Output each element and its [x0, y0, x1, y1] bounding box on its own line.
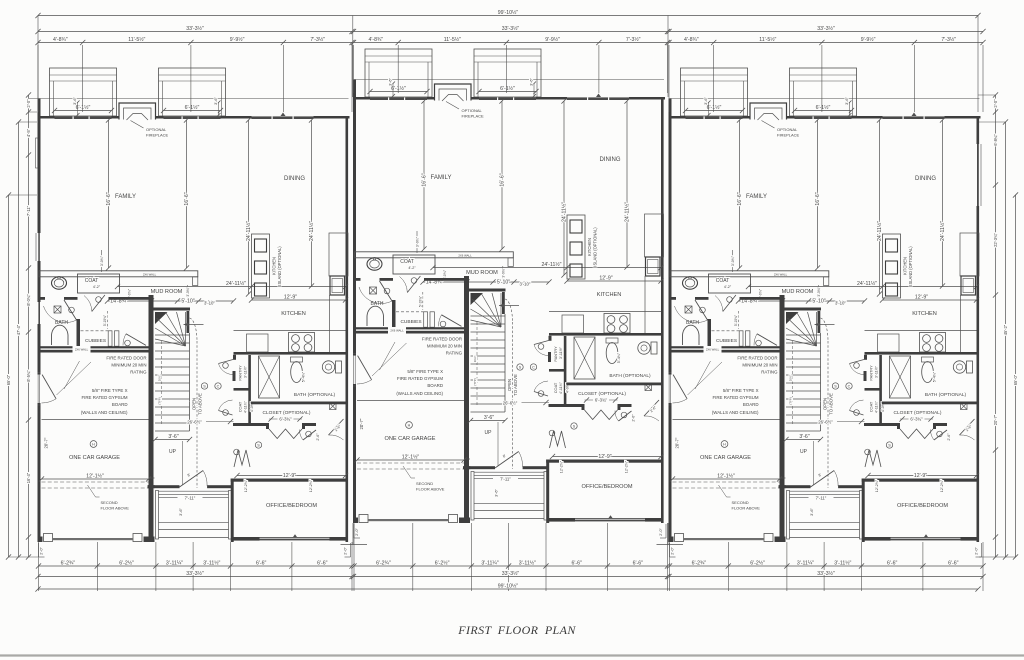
svg-text:16'-6": 16'-6" [421, 173, 427, 186]
svg-text:6'-1½": 6'-1½" [816, 104, 831, 111]
svg-text:COAT: COAT [716, 278, 730, 284]
svg-text:OPTIONAL: OPTIONAL [462, 108, 483, 113]
svg-text:(TYP): (TYP) [473, 378, 477, 385]
svg-text:26'-6½": 26'-6½" [187, 420, 202, 425]
svg-text:33'-3½": 33'-3½" [817, 25, 835, 32]
svg-text:FIRE RATED DOOR: FIRE RATED DOOR [422, 337, 462, 342]
svg-text:24'-11½": 24'-11½" [939, 221, 946, 241]
svg-text:20'-7": 20'-7" [44, 437, 49, 448]
svg-text:C: C [532, 366, 535, 370]
svg-text:2X6 WALL: 2X6 WALL [75, 348, 89, 352]
svg-text:4'-11¾": 4'-11¾" [559, 381, 563, 394]
svg-text:2X6 WALL: 2X6 WALL [143, 273, 157, 277]
svg-text:12'-9": 12'-9" [598, 454, 611, 460]
svg-text:OPEN: OPEN [507, 379, 512, 391]
svg-text:RATING: RATING [761, 370, 778, 375]
svg-text:7'-11": 7'-11" [816, 496, 827, 501]
svg-text:3'-6": 3'-6" [844, 97, 849, 105]
svg-text:SECOND: SECOND [416, 481, 433, 486]
svg-text:47'-4": 47'-4" [16, 324, 21, 335]
svg-text:2X6 WALL: 2X6 WALL [458, 254, 472, 258]
svg-text:COAT: COAT [238, 401, 243, 412]
svg-text:2'-6": 2'-6" [632, 414, 636, 422]
svg-text:2'-0": 2'-0" [974, 547, 979, 555]
svg-text:24'-11½": 24'-11½" [308, 221, 315, 241]
svg-text:BATH (OPTIONAL): BATH (OPTIONAL) [925, 392, 967, 398]
svg-text:3'-0¾": 3'-0¾" [100, 255, 104, 266]
svg-text:FIREPLACE: FIREPLACE [146, 133, 169, 138]
svg-text:16'-4": 16'-4" [26, 472, 31, 483]
svg-text:3'-10": 3'-10" [520, 282, 531, 287]
svg-text:3'-10": 3'-10" [204, 301, 215, 306]
svg-text:4'-11¾": 4'-11¾" [875, 400, 879, 413]
svg-text:OFFICE/BEDROOM: OFFICE/BEDROOM [266, 503, 317, 509]
svg-text:BATH (OPTIONAL): BATH (OPTIONAL) [294, 392, 336, 398]
svg-text:(WALLS AND CEILING): (WALLS AND CEILING) [81, 410, 128, 415]
svg-text:MUD ROOM: MUD ROOM [782, 289, 814, 295]
svg-text:4'-8¾": 4'-8¾" [368, 37, 383, 43]
svg-text:3'-11½": 3'-11½" [875, 365, 879, 378]
svg-text:6'-2½": 6'-2½" [119, 560, 134, 567]
svg-text:3'-11¼": 3'-11¼" [481, 561, 498, 567]
svg-text:UP: UP [169, 449, 177, 455]
svg-text:12'-2¾": 12'-2¾" [940, 479, 944, 492]
svg-text:FLOOR ABOVE: FLOOR ABOVE [416, 487, 445, 492]
svg-text:2'-0": 2'-0" [343, 547, 348, 555]
svg-text:26'-6½": 26'-6½" [503, 401, 518, 406]
svg-text:12'-2¾": 12'-2¾" [309, 479, 313, 492]
svg-text:10¼": 10¼" [158, 375, 162, 381]
svg-text:3'-11¼": 3'-11¼" [797, 561, 814, 567]
svg-text:6'-6": 6'-6" [948, 561, 958, 567]
svg-text:SECOND: SECOND [732, 500, 749, 505]
svg-text:5/8" FIRE TYPE X: 5/8" FIRE TYPE X [92, 388, 128, 393]
svg-text:6'-1½": 6'-1½" [500, 85, 515, 92]
svg-text:7'-3½": 7'-3½" [310, 36, 325, 43]
svg-text:6'-6": 6'-6" [887, 561, 897, 567]
svg-text:MUD ROOM: MUD ROOM [151, 289, 183, 295]
svg-text:RATING: RATING [446, 351, 463, 356]
svg-text:FIRE RATED GYPSUM: FIRE RATED GYPSUM [81, 395, 127, 400]
svg-text:5'-10¾": 5'-10¾" [419, 295, 423, 307]
svg-text:6'-2½": 6'-2½" [750, 560, 765, 567]
svg-text:TO ABOVE: TO ABOVE [829, 393, 834, 415]
svg-text:6'-1½": 6'-1½" [707, 104, 722, 111]
svg-text:C: C [217, 385, 220, 389]
svg-text:3'-6": 3'-6" [799, 434, 809, 440]
svg-text:3'-11¼": 3'-11¼" [166, 561, 183, 567]
svg-text:5/8" FIRE TYPE X: 5/8" FIRE TYPE X [723, 388, 759, 393]
svg-text:2'-6": 2'-6" [947, 433, 951, 441]
svg-text:99'-10½": 99'-10½" [498, 583, 519, 590]
svg-text:9'-9½": 9'-9½" [861, 36, 876, 43]
svg-text:OPTIONAL: OPTIONAL [146, 127, 167, 132]
svg-text:3'-0¾": 3'-0¾" [731, 255, 735, 266]
svg-text:C: C [848, 385, 851, 389]
svg-text:RATING: RATING [130, 370, 147, 375]
svg-text:MUD ROOM: MUD ROOM [466, 270, 498, 276]
svg-text:2'-0": 2'-0" [993, 99, 998, 108]
svg-text:11'-5½": 11'-5½" [759, 36, 776, 43]
svg-text:5'-10": 5'-10" [181, 299, 194, 305]
svg-text:FIRE RATED DOOR: FIRE RATED DOOR [737, 356, 777, 361]
svg-text:5'-4¾": 5'-4¾" [302, 371, 306, 382]
svg-text:24'-11½": 24'-11½" [245, 221, 252, 241]
svg-text:4'-8¾": 4'-8¾" [53, 37, 68, 43]
svg-text:26'-6½": 26'-6½" [818, 420, 833, 425]
svg-text:ISLAND (OPTIONAL): ISLAND (OPTIONAL) [593, 227, 598, 267]
svg-text:MINIMUM 20 MIN: MINIMUM 20 MIN [742, 363, 777, 368]
svg-text:ISLAND (OPTIONAL): ISLAND (OPTIONAL) [277, 246, 282, 286]
svg-text:FAMILY: FAMILY [746, 194, 767, 200]
svg-text:16'-6": 16'-6" [184, 192, 190, 205]
svg-text:3'-6": 3'-6" [168, 434, 178, 440]
svg-text:FIRE RATED GYPSUM: FIRE RATED GYPSUM [397, 376, 443, 381]
svg-text:33'-3½": 33'-3½" [502, 570, 520, 577]
svg-text:FAMILY: FAMILY [431, 175, 452, 181]
svg-text:5/8" FIRE TYPE X: 5/8" FIRE TYPE X [407, 369, 443, 374]
svg-text:6'-6": 6'-6" [633, 561, 643, 567]
svg-text:3'-0¾": 3'-0¾" [501, 268, 505, 278]
svg-text:33'-3½": 33'-3½" [817, 570, 835, 577]
svg-text:3'-10": 3'-10" [835, 301, 846, 306]
svg-text:3'-6": 3'-6" [72, 97, 77, 105]
svg-text:PANTRY: PANTRY [869, 365, 874, 381]
svg-text:7'-3½": 7'-3½" [941, 36, 956, 43]
svg-text:OFFICE/BEDROOM: OFFICE/BEDROOM [897, 503, 948, 509]
svg-text:6'-3¾": 6'-3¾" [279, 417, 292, 422]
svg-text:5'-4¾": 5'-4¾" [617, 352, 621, 363]
svg-text:4'-2": 4'-2" [408, 266, 416, 270]
svg-text:3'-6": 3'-6" [213, 97, 218, 105]
svg-text:16'-6": 16'-6" [106, 192, 112, 205]
svg-text:H: H [92, 443, 95, 447]
svg-text:10¼": 10¼" [473, 356, 477, 362]
svg-text:12'-9": 12'-9" [914, 473, 927, 479]
svg-text:12'-2¾": 12'-2¾" [625, 460, 629, 473]
svg-text:6'-6": 6'-6" [572, 561, 582, 567]
svg-text:ONE CAR GARAGE: ONE CAR GARAGE [700, 455, 751, 461]
svg-text:UP: UP [485, 430, 493, 436]
svg-text:7'-11": 7'-11" [185, 496, 196, 501]
svg-text:MINIMUM 20 MIN: MINIMUM 20 MIN [427, 344, 462, 349]
svg-text:ONE CAR GARAGE: ONE CAR GARAGE [69, 455, 120, 461]
svg-text:UP: UP [800, 449, 808, 455]
svg-text:20'-7": 20'-7" [359, 418, 364, 429]
svg-text:6'-1½": 6'-1½" [76, 104, 91, 111]
svg-text:COAT: COAT [869, 401, 874, 412]
svg-text:H: H [723, 443, 726, 447]
svg-text:KITCHEN: KITCHEN [272, 257, 277, 275]
svg-text:5'-10¾": 5'-10¾" [103, 314, 107, 326]
svg-text:CUBBIES: CUBBIES [85, 338, 106, 344]
svg-text:DINING: DINING [915, 176, 936, 182]
svg-text:65'-0": 65'-0" [1013, 374, 1018, 385]
svg-text:DINING: DINING [284, 176, 305, 182]
svg-text:24'-11½": 24'-11½" [857, 280, 877, 287]
svg-text:COAT: COAT [85, 278, 99, 284]
svg-text:ONE CAR GARAGE: ONE CAR GARAGE [385, 436, 436, 442]
svg-text:FLOOR ABOVE: FLOOR ABOVE [732, 506, 761, 511]
svg-text:5'-10¾": 5'-10¾" [734, 314, 738, 326]
svg-text:11'-5½": 11'-5½" [128, 36, 145, 43]
svg-text:2'-0": 2'-0" [354, 528, 359, 536]
svg-text:ISLAND (OPTIONAL): ISLAND (OPTIONAL) [908, 246, 913, 286]
svg-text:OFFICE/BEDROOM: OFFICE/BEDROOM [582, 484, 633, 490]
svg-text:3'-0¾": 3'-0¾" [817, 287, 821, 297]
svg-text:PANTRY: PANTRY [238, 365, 243, 381]
svg-text:4'-2": 4'-2" [724, 285, 732, 289]
svg-text:12'-2¾": 12'-2¾" [244, 479, 248, 492]
svg-text:KITCHEN: KITCHEN [281, 311, 306, 317]
svg-text:6'-2¾": 6'-2¾" [376, 561, 391, 567]
svg-text:3'-11½": 3'-11½" [559, 346, 563, 359]
svg-text:3'-11½": 3'-11½" [834, 560, 851, 567]
svg-text:3'-6": 3'-6" [388, 78, 393, 86]
svg-text:FLOOR ABOVE: FLOOR ABOVE [101, 506, 130, 511]
svg-text:PANTRY: PANTRY [553, 346, 558, 362]
svg-text:KITCHEN: KITCHEN [597, 292, 622, 298]
svg-text:24'-11½": 24'-11½" [560, 202, 567, 222]
svg-text:12'-2¾": 12'-2¾" [560, 460, 564, 473]
svg-text:6'-1½": 6'-1½" [391, 85, 406, 92]
svg-text:OPTIONAL: OPTIONAL [777, 127, 798, 132]
svg-text:16'-6": 16'-6" [815, 192, 821, 205]
svg-text:OPEN: OPEN [192, 398, 197, 410]
svg-text:8'-5¾": 8'-5¾" [26, 370, 31, 382]
svg-text:2'-0": 2'-0" [39, 547, 44, 555]
svg-text:3'-6": 3'-6" [703, 97, 708, 105]
svg-text:4'-2": 4'-2" [93, 285, 101, 289]
svg-text:FIREPLACE: FIREPLACE [462, 114, 485, 119]
svg-text:45'-2": 45'-2" [1003, 324, 1008, 335]
svg-text:CUBBIES: CUBBIES [716, 338, 737, 344]
svg-text:COAT: COAT [553, 382, 558, 393]
svg-text:5'-10": 5'-10" [497, 280, 510, 286]
svg-text:KITCHEN: KITCHEN [912, 311, 937, 317]
svg-text:12'-1½": 12'-1½" [86, 473, 104, 480]
svg-text:4'-8¾": 4'-8¾" [684, 37, 699, 43]
svg-text:3'-6": 3'-6" [494, 489, 499, 497]
svg-text:65'-0": 65'-0" [6, 374, 11, 385]
svg-text:12'-9": 12'-9" [915, 295, 928, 301]
svg-text:(WALLS AND CEILING): (WALLS AND CEILING) [396, 391, 443, 396]
svg-text:20'-7": 20'-7" [993, 414, 998, 425]
svg-text:BATH (OPTIONAL): BATH (OPTIONAL) [609, 373, 651, 379]
svg-text:3'-6": 3'-6" [809, 508, 814, 516]
svg-text:BOARD: BOARD [427, 383, 443, 388]
svg-text:24'-11½": 24'-11½" [541, 261, 561, 268]
svg-text:6'-2¾": 6'-2¾" [692, 561, 707, 567]
svg-text:33'-3½": 33'-3½" [186, 570, 204, 577]
svg-text:12'-9": 12'-9" [284, 295, 297, 301]
svg-text:6'-3¾": 6'-3¾" [595, 398, 608, 403]
svg-text:3'-6": 3'-6" [484, 415, 494, 421]
svg-text:24'-11½": 24'-11½" [226, 280, 246, 287]
svg-text:2X6 WALL: 2X6 WALL [390, 329, 404, 333]
svg-text:7'-11": 7'-11" [500, 477, 511, 482]
svg-text:24'-11½": 24'-11½" [876, 221, 883, 241]
svg-text:3'-11½": 3'-11½" [244, 365, 248, 378]
svg-text:6'-1½": 6'-1½" [185, 104, 200, 111]
svg-text:OPEN: OPEN [823, 398, 828, 410]
svg-text:7'-11": 7'-11" [26, 205, 31, 216]
svg-text:2X6 WALL: 2X6 WALL [706, 348, 720, 352]
svg-text:3'-6": 3'-6" [178, 508, 183, 516]
svg-text:3'-0¾": 3'-0¾" [416, 236, 420, 247]
svg-text:FIRE RATED GYPSUM: FIRE RATED GYPSUM [712, 395, 758, 400]
svg-text:7'-3½": 7'-3½" [626, 36, 641, 43]
svg-text:9'-9½": 9'-9½" [230, 36, 245, 43]
svg-text:FAMILY: FAMILY [115, 194, 136, 200]
svg-text:TO ABOVE: TO ABOVE [513, 374, 518, 396]
svg-text:KITCHEN: KITCHEN [587, 238, 592, 256]
svg-text:6'-2½": 6'-2½" [435, 560, 450, 567]
svg-text:11'-5½": 11'-5½" [444, 36, 461, 43]
svg-text:2'-0": 2'-0" [670, 547, 675, 555]
svg-text:H: H [408, 424, 411, 428]
svg-text:5'-4¾": 5'-4¾" [933, 371, 937, 382]
svg-text:4'-5": 4'-5" [26, 128, 31, 137]
svg-text:CLOSET (OPTIONAL): CLOSET (OPTIONAL) [263, 410, 311, 416]
svg-text:(WALLS AND CEILING): (WALLS AND CEILING) [712, 410, 759, 415]
svg-text:BOARD: BOARD [743, 402, 759, 407]
svg-text:DINING: DINING [600, 157, 621, 163]
svg-text:6'-3¾": 6'-3¾" [910, 417, 923, 422]
svg-text:(TYP): (TYP) [158, 397, 162, 404]
svg-text:22'-3¾": 22'-3¾" [993, 233, 998, 247]
svg-text:BOARD: BOARD [112, 402, 128, 407]
svg-text:FIREPLACE: FIREPLACE [777, 133, 800, 138]
svg-text:16'-6": 16'-6" [737, 192, 743, 205]
svg-text:12'-1½": 12'-1½" [717, 473, 735, 480]
svg-text:COAT: COAT [400, 259, 414, 265]
svg-text:3'-6": 3'-6" [529, 78, 534, 86]
svg-text:4'-11¾": 4'-11¾" [244, 400, 248, 413]
svg-text:2'-6": 2'-6" [316, 433, 320, 441]
svg-text:12'-2¾": 12'-2¾" [875, 479, 879, 492]
svg-text:24'-11½": 24'-11½" [623, 202, 630, 222]
svg-text:2'-0": 2'-0" [658, 528, 663, 536]
svg-text:KITCHEN: KITCHEN [903, 257, 908, 275]
svg-text:FIRST FLOOR PLAN: FIRST FLOOR PLAN [457, 623, 576, 637]
svg-text:20'-7": 20'-7" [675, 437, 680, 448]
svg-text:CLOSET (OPTIONAL): CLOSET (OPTIONAL) [894, 410, 942, 416]
svg-text:6'-2¾": 6'-2¾" [61, 561, 76, 567]
svg-text:8'-0¾": 8'-0¾" [26, 294, 31, 306]
svg-text:3'-11½": 3'-11½" [519, 560, 536, 567]
svg-text:10¼": 10¼" [789, 375, 793, 381]
svg-text:CLOSET (OPTIONAL): CLOSET (OPTIONAL) [578, 391, 626, 397]
svg-text:CUBBIES: CUBBIES [400, 319, 421, 325]
svg-text:33'-3½": 33'-3½" [502, 25, 520, 32]
svg-text:3'-0¾": 3'-0¾" [186, 287, 190, 297]
svg-text:5'-10": 5'-10" [812, 299, 825, 305]
svg-text:SECOND: SECOND [101, 500, 118, 505]
svg-text:99'-10½": 99'-10½" [498, 9, 519, 16]
svg-text:12'-1½": 12'-1½" [402, 454, 420, 461]
svg-text:3'-11½": 3'-11½" [203, 560, 220, 567]
svg-text:2'-0": 2'-0" [26, 99, 31, 108]
svg-text:(TYP): (TYP) [789, 397, 793, 404]
svg-text:FIRE RATED DOOR: FIRE RATED DOOR [106, 356, 146, 361]
svg-text:6'-6": 6'-6" [256, 561, 266, 567]
svg-text:12'-9": 12'-9" [283, 473, 296, 479]
svg-text:12'-9": 12'-9" [599, 276, 612, 282]
svg-text:2X6 WALL: 2X6 WALL [774, 273, 788, 277]
svg-text:6'-6": 6'-6" [317, 561, 327, 567]
svg-text:MINIMUM 20 MIN: MINIMUM 20 MIN [111, 363, 146, 368]
svg-text:16'-6": 16'-6" [499, 173, 505, 186]
svg-text:9'-9½": 9'-9½" [545, 36, 560, 43]
svg-text:33'-3½": 33'-3½" [186, 25, 204, 32]
svg-text:6'-8¼": 6'-8¼" [993, 134, 998, 146]
svg-text:TO ABOVE: TO ABOVE [198, 393, 203, 415]
